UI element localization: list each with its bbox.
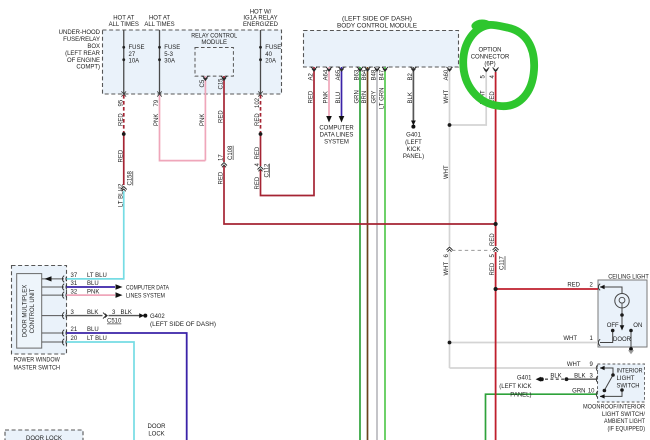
svg-text:A64: A64 — [323, 69, 329, 80]
svg-text:DOOR LOCK: DOOR LOCK — [26, 436, 62, 440]
svg-text:LT BLU: LT BLU — [87, 336, 107, 342]
svg-text:5-3: 5-3 — [164, 52, 173, 58]
svg-text:(LEFT SIDE OF DASH): (LEFT SIDE OF DASH) — [342, 17, 412, 23]
svg-text:HOT AT: HOT AT — [113, 16, 134, 22]
svg-text:COMPUTER DATA: COMPUTER DATA — [126, 285, 169, 291]
svg-text:ALL TIMES: ALL TIMES — [144, 22, 174, 28]
svg-text:102: 102 — [255, 97, 261, 108]
svg-text:COMPT): COMPT) — [76, 65, 100, 71]
svg-text:79: 79 — [154, 99, 160, 106]
svg-text:G401: G401 — [517, 375, 532, 381]
svg-text:BRN: BRN — [362, 91, 368, 104]
svg-text:ALL TIMES: ALL TIMES — [109, 22, 139, 28]
svg-text:IG1A RELAY: IG1A RELAY — [243, 16, 277, 22]
svg-text:BLK: BLK — [408, 92, 414, 103]
svg-text:FUSE/RELAY: FUSE/RELAY — [63, 37, 100, 43]
svg-text:SYSTEM: SYSTEM — [324, 139, 349, 145]
svg-text:RED: RED — [490, 262, 496, 275]
svg-text:WHT: WHT — [563, 336, 577, 342]
svg-text:RED: RED — [255, 176, 261, 189]
svg-text:C112: C112 — [264, 163, 270, 178]
svg-text:C117: C117 — [500, 255, 506, 270]
svg-text:RED: RED — [118, 113, 124, 126]
svg-text:ON: ON — [633, 323, 642, 329]
svg-text:32: 32 — [71, 289, 78, 295]
svg-text:DATA LINES: DATA LINES — [320, 132, 354, 138]
svg-text:G401: G401 — [406, 133, 421, 139]
svg-text:C510: C510 — [107, 319, 122, 325]
svg-text:DOOR: DOOR — [148, 424, 167, 430]
svg-text:FUSE: FUSE — [129, 45, 145, 51]
svg-text:CONTROL UNIT: CONTROL UNIT — [30, 288, 36, 333]
svg-text:C158: C158 — [128, 170, 134, 185]
svg-text:RED: RED — [255, 146, 261, 159]
svg-text:A65: A65 — [336, 69, 342, 80]
svg-text:BLK: BLK — [121, 310, 132, 316]
svg-text:(6P): (6P) — [484, 61, 495, 67]
svg-text:KICK: KICK — [406, 147, 420, 153]
svg-text:BLK: BLK — [574, 373, 585, 379]
svg-text:RED: RED — [308, 90, 314, 103]
svg-text:B63: B63 — [354, 69, 360, 80]
svg-text:WHT: WHT — [444, 262, 450, 276]
svg-text:INTERIOR: INTERIOR — [617, 369, 644, 375]
svg-text:95: 95 — [118, 99, 124, 106]
svg-text:RED: RED — [118, 149, 124, 162]
svg-text:OFF: OFF — [607, 323, 619, 329]
svg-text:30A: 30A — [164, 58, 175, 64]
svg-text:(LEFT: (LEFT — [405, 140, 422, 146]
svg-text:OF ENGINE: OF ENGINE — [67, 58, 100, 64]
svg-text:10A: 10A — [129, 58, 140, 64]
svg-text:SWITCH: SWITCH — [617, 383, 640, 389]
svg-text:FUSE: FUSE — [164, 45, 180, 51]
svg-text:LIGHT: LIGHT — [617, 376, 635, 382]
svg-text:20A: 20A — [265, 58, 276, 64]
svg-text:LT BLU: LT BLU — [118, 187, 124, 207]
svg-text:40: 40 — [265, 52, 272, 58]
svg-text:ENERGIZED: ENERGIZED — [243, 22, 279, 28]
svg-text:BLU: BLU — [87, 281, 99, 287]
svg-text:DOOR MULTIPLEX: DOOR MULTIPLEX — [23, 285, 29, 338]
svg-text:OPTION: OPTION — [478, 48, 501, 54]
svg-text:(LEFT SIDE OF DASH): (LEFT SIDE OF DASH) — [150, 322, 216, 328]
svg-text:21: 21 — [71, 327, 78, 333]
svg-text:GRN: GRN — [572, 388, 585, 394]
svg-text:LT BLU: LT BLU — [87, 273, 107, 279]
svg-text:B64: B64 — [362, 69, 368, 80]
svg-text:27: 27 — [129, 52, 136, 58]
svg-text:BODY CONTROL MODULE: BODY CONTROL MODULE — [337, 23, 417, 29]
svg-text:PNK: PNK — [87, 289, 99, 295]
svg-text:PANEL): PANEL) — [510, 393, 531, 399]
svg-text:POWER WINDOW: POWER WINDOW — [14, 357, 61, 363]
svg-text:DOOR: DOOR — [613, 337, 632, 343]
svg-text:PNK: PNK — [200, 114, 206, 126]
svg-text:GRY: GRY — [371, 91, 377, 104]
svg-text:LINES SYSTEM: LINES SYSTEM — [126, 293, 165, 299]
svg-text:C108: C108 — [228, 145, 234, 160]
svg-text:17: 17 — [218, 154, 224, 161]
svg-text:PNK: PNK — [154, 114, 160, 126]
svg-text:(LEFT KICK: (LEFT KICK — [499, 384, 531, 390]
svg-text:G402: G402 — [150, 314, 165, 320]
svg-text:31: 31 — [71, 281, 78, 287]
svg-text:WHT: WHT — [567, 362, 581, 368]
svg-text:PNK: PNK — [323, 91, 329, 103]
svg-text:RED: RED — [255, 113, 261, 126]
svg-text:LIGHT SWITCH/: LIGHT SWITCH/ — [602, 412, 645, 418]
svg-text:B47: B47 — [379, 69, 385, 80]
svg-text:MASTER SWITCH: MASTER SWITCH — [14, 365, 61, 371]
svg-text:MODULE: MODULE — [201, 40, 227, 46]
svg-text:(LEFT REAR: (LEFT REAR — [65, 51, 101, 57]
svg-text:10: 10 — [588, 388, 595, 394]
svg-text:RED: RED — [567, 283, 580, 289]
svg-text:HOT AT: HOT AT — [149, 16, 170, 22]
svg-text:RELAY CONTROL: RELAY CONTROL — [191, 34, 238, 40]
svg-text:PANEL): PANEL) — [403, 154, 424, 160]
svg-text:MOONROOF/INTERIOR: MOONROOF/INTERIOR — [583, 405, 646, 411]
svg-text:BOX: BOX — [87, 44, 100, 50]
svg-text:CONNECTOR: CONNECTOR — [471, 55, 510, 61]
svg-text:C15: C15 — [218, 78, 224, 90]
svg-text:UNDER-HOOD: UNDER-HOOD — [59, 30, 101, 36]
svg-text:LOCK: LOCK — [148, 432, 164, 438]
svg-text:RED: RED — [218, 110, 224, 123]
svg-text:CEILING LIGHT: CEILING LIGHT — [608, 274, 649, 280]
svg-text:37: 37 — [71, 273, 78, 279]
svg-text:20: 20 — [71, 336, 78, 342]
svg-text:COMPUTER: COMPUTER — [319, 126, 354, 132]
svg-text:BLK: BLK — [87, 310, 98, 316]
svg-text:B48: B48 — [371, 69, 377, 80]
svg-text:BLU: BLU — [336, 92, 342, 104]
svg-text:BLK: BLK — [550, 373, 561, 379]
svg-text:(IF EQUIPPED): (IF EQUIPPED) — [608, 426, 646, 432]
svg-text:BLU: BLU — [87, 327, 99, 333]
svg-text:RED: RED — [490, 233, 496, 246]
svg-text:GRN: GRN — [354, 90, 360, 103]
svg-text:AMBIENT LIGHT: AMBIENT LIGHT — [604, 419, 645, 425]
svg-text:B2: B2 — [408, 72, 414, 80]
svg-text:HOT W/: HOT W/ — [250, 9, 272, 15]
svg-text:LT GRN: LT GRN — [379, 88, 385, 109]
svg-text:WHT: WHT — [444, 90, 450, 104]
svg-text:RED: RED — [218, 171, 224, 184]
svg-text:A2: A2 — [308, 72, 314, 80]
svg-text:C5: C5 — [200, 79, 206, 87]
svg-text:A60: A60 — [444, 69, 450, 80]
svg-text:WHT: WHT — [444, 165, 450, 179]
svg-text:FUSE: FUSE — [265, 45, 281, 51]
